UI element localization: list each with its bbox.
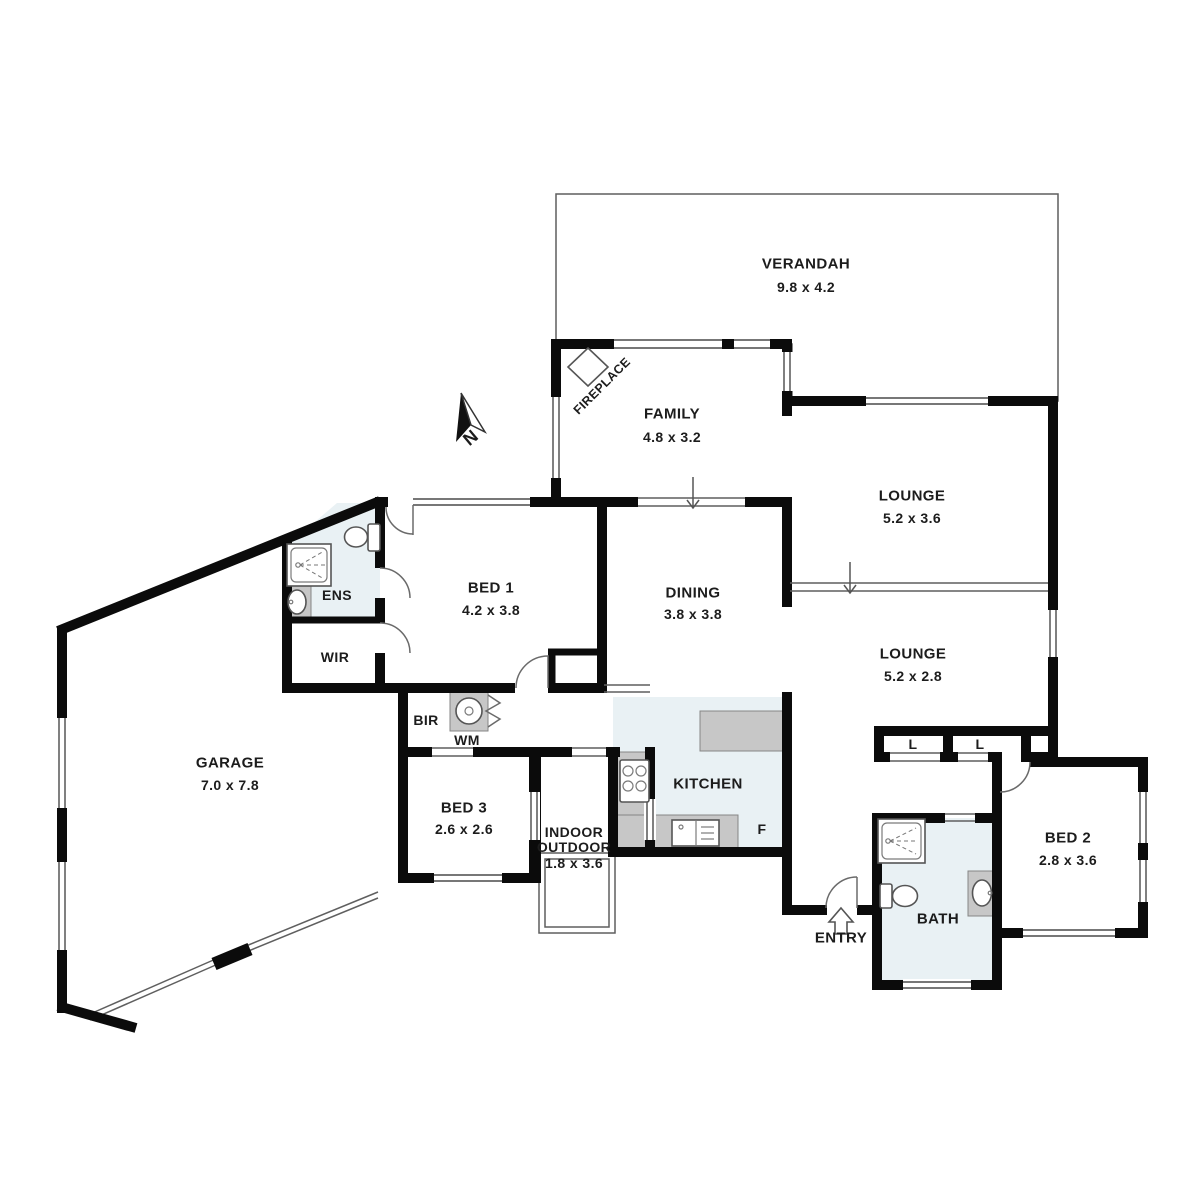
ens-sink-icon [288, 590, 306, 614]
room-label-kitchen: KITCHEN [673, 776, 742, 793]
room-label-lounge-bottom: LOUNGE [880, 646, 947, 663]
room-label-ens: ENS [322, 587, 352, 603]
room-dims-bed2: 2.8 x 3.6 [1039, 852, 1097, 868]
wet-area-fills [287, 503, 997, 985]
linen-label-right: L [976, 736, 985, 752]
room-dims-lounge-top: 5.2 x 3.6 [883, 510, 941, 526]
room-dims-dining: 3.8 x 3.8 [664, 606, 722, 622]
room-label-wm: WM [454, 732, 480, 748]
room-dims-verandah: 9.8 x 4.2 [777, 279, 835, 295]
room-dims-indoor-outdoor: 1.8 x 3.6 [545, 855, 603, 871]
room-label-family: FAMILY [644, 406, 700, 423]
garage-door-lines [90, 892, 378, 1020]
bath-sink-icon [973, 880, 992, 906]
room-label-lounge-top: LOUNGE [879, 488, 946, 505]
room-dims-family: 4.8 x 3.2 [643, 429, 701, 445]
room-label-outdoor: OUTDOOR [537, 839, 611, 855]
room-label-indoor: INDOOR [545, 824, 603, 840]
passage-arrows [687, 477, 856, 593]
room-label-bir: BIR [413, 712, 438, 728]
room-label-dining: DINING [666, 585, 721, 602]
room-label-garage: GARAGE [196, 755, 264, 772]
room-dims-lounge-bottom: 5.2 x 2.8 [884, 668, 942, 684]
kitchen-sink-icon [672, 820, 719, 846]
room-label-bed3: BED 3 [441, 800, 487, 817]
bath-toilet-icon [880, 884, 918, 908]
ens-shower-icon [287, 544, 331, 586]
linen-label-left: L [909, 736, 918, 752]
floor-plan: VERANDAH 9.8 x 4.2 FAMILY 4.8 x 3.2 LOUN… [0, 0, 1200, 1200]
room-dims-garage: 7.0 x 7.8 [201, 777, 259, 793]
room-label-bed2: BED 2 [1045, 830, 1091, 847]
entry-label: ENTRY [815, 930, 867, 947]
fridge-label: F [758, 821, 767, 837]
room-label-bed1: BED 1 [468, 580, 514, 597]
floor-plan-drawing [0, 0, 1200, 1200]
bath-shower-icon [878, 819, 925, 863]
room-dims-bed1: 4.2 x 3.8 [462, 602, 520, 618]
stove-icon [620, 760, 649, 802]
room-dims-bed3: 2.6 x 2.6 [435, 821, 493, 837]
room-label-wir: WIR [321, 649, 349, 665]
verandah-outline [556, 194, 1058, 401]
room-label-verandah: VERANDAH [762, 256, 850, 273]
room-label-bath: BATH [917, 911, 959, 928]
